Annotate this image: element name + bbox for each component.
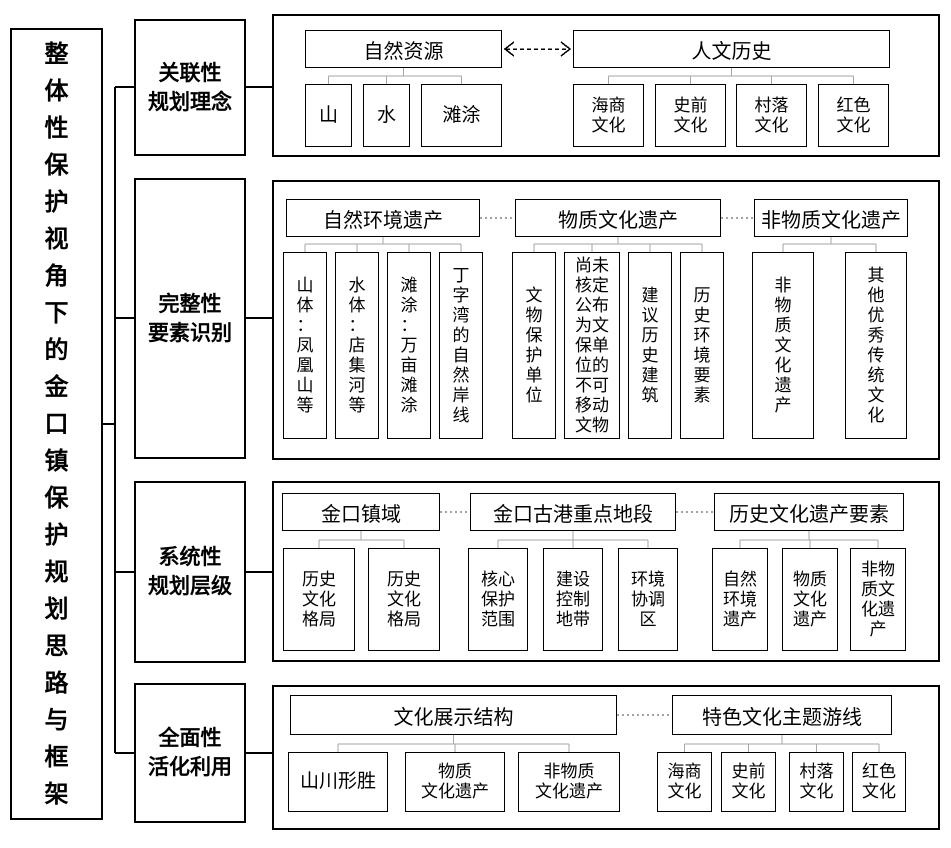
child-text: 山川形胜 xyxy=(300,772,376,792)
tree-child-box: 历史环境要素 xyxy=(680,252,724,439)
tree-child-box: 环境协调区 xyxy=(618,548,678,651)
parent-box-jinkou-town-area: 金口镇域 xyxy=(282,493,440,531)
parent-box-humanistic-history: 人文历史 xyxy=(573,30,890,68)
tree-child-box: 非物质 文化遗产 xyxy=(518,752,620,812)
parent-text: 物质文化遗产 xyxy=(558,204,678,233)
section-label-integrity: 完整性 要素识别 xyxy=(134,178,246,459)
child-text: 自然环境遗产 xyxy=(719,570,762,630)
section-label-text: 全面性 活化利用 xyxy=(148,724,232,782)
child-text: 环境协调区 xyxy=(627,570,670,630)
tree-child-box: 建设控制地带 xyxy=(543,548,603,651)
parent-box-culture-display-structure: 文化展示结构 xyxy=(290,695,617,735)
child-text: 山体：凤凰山等 xyxy=(294,276,316,416)
child-text: 物质 文化遗产 xyxy=(421,762,489,802)
parent-box-jinkou-ancient-port-area: 金口古港重点地段 xyxy=(470,493,676,531)
parent-text: 历史文化遗产要素 xyxy=(729,498,889,527)
parent-box-natural-resources: 自然资源 xyxy=(305,30,502,68)
child-text: 水体：店集河等 xyxy=(346,276,368,416)
child-text: 建设控制地带 xyxy=(552,570,595,630)
child-text: 物质文化遗产 xyxy=(789,570,832,630)
parent-box-themed-culture-routes: 特色文化主题游线 xyxy=(672,695,892,735)
child-text: 史前文化 xyxy=(727,762,770,802)
child-text: 核心保护范围 xyxy=(477,570,520,630)
child-text: 山 xyxy=(319,106,338,126)
section-label-text: 关联性 规划理念 xyxy=(148,59,232,117)
parent-text: 文化展示结构 xyxy=(394,701,514,730)
child-text: 建议历史建筑 xyxy=(639,286,661,406)
tree-child-box: 海商文化 xyxy=(657,752,712,812)
tree-child-box: 红色文化 xyxy=(818,84,889,147)
child-text: 其他优秀传统文化 xyxy=(865,266,887,426)
parent-box-material-cultural-heritage: 物质文化遗产 xyxy=(515,199,721,237)
tree-child-box: 山 xyxy=(305,84,352,147)
parent-text: 自然环境遗产 xyxy=(323,204,443,233)
tree-child-box: 丁字湾的自然岸线 xyxy=(439,252,483,439)
child-text: 村落文化 xyxy=(750,96,793,136)
child-text: 历史文化格局 xyxy=(383,570,426,630)
section-label-relevance: 关联性 规划理念 xyxy=(134,19,246,156)
child-text: 红色文化 xyxy=(832,96,875,136)
child-text: 村落文化 xyxy=(795,762,838,802)
tree-child-box: 历史文化格局 xyxy=(283,548,355,651)
tree-child-box: 滩涂 xyxy=(421,84,502,147)
parent-text: 特色文化主题游线 xyxy=(702,701,862,730)
tree-child-box: 村落文化 xyxy=(736,84,807,147)
child-text: 丁字湾的自然岸线 xyxy=(450,266,472,426)
tree-child-box: 山川形胜 xyxy=(288,752,388,812)
section-label-text: 完整性 要素识别 xyxy=(148,290,232,348)
tree-child-box: 文物保护单位 xyxy=(512,252,556,439)
tree-child-box: 历史文化格局 xyxy=(368,548,440,651)
child-text: 滩涂 xyxy=(442,106,480,126)
child-text: 历史文化格局 xyxy=(298,570,341,630)
tree-child-box: 核心保护范围 xyxy=(468,548,528,651)
section-label-text: 系统性 规划层级 xyxy=(148,543,232,601)
parent-text: 金口古港重点地段 xyxy=(493,498,653,527)
child-text: 非物质文化遗产 xyxy=(857,560,900,640)
child-text: 海商文化 xyxy=(587,96,630,136)
parent-text: 人文历史 xyxy=(692,35,772,64)
section-label-comprehensive: 全面性 活化利用 xyxy=(134,683,246,823)
child-text: 滩涂：万亩滩涂 xyxy=(398,276,420,416)
main-title-text: 整体性保护视角下的金口镇保护规划思路与框架 xyxy=(40,36,72,813)
tree-child-box: 红色文化 xyxy=(852,752,906,812)
tree-child-box: 水 xyxy=(363,84,410,147)
parent-box-intangible-cultural-heritage: 非物质文化遗产 xyxy=(754,199,908,237)
tree-child-box: 尚未核定公布为文保单位的不可移动文物 xyxy=(564,252,620,439)
tree-child-box: 水体：店集河等 xyxy=(335,252,379,439)
tree-child-box: 山体：凤凰山等 xyxy=(283,252,327,439)
parent-text: 金口镇域 xyxy=(321,498,401,527)
tree-child-box: 物质文化遗产 xyxy=(782,548,838,651)
child-text: 海商文化 xyxy=(663,762,706,802)
child-text: 非物质 文化遗产 xyxy=(535,762,603,802)
child-text: 水 xyxy=(377,106,396,126)
parent-text: 自然资源 xyxy=(364,35,444,64)
child-text: 史前文化 xyxy=(669,96,712,136)
main-title-box: 整体性保护视角下的金口镇保护规划思路与框架 xyxy=(10,28,103,820)
parent-text: 非物质文化遗产 xyxy=(761,204,901,233)
tree-child-box: 物质 文化遗产 xyxy=(405,752,505,812)
child-text: 红色文化 xyxy=(858,762,901,802)
child-text: 非物质文化遗产 xyxy=(772,276,794,416)
tree-child-box: 自然环境遗产 xyxy=(712,548,768,651)
parent-box-natural-environment-heritage: 自然环境遗产 xyxy=(286,199,480,237)
diagram-page: { "title": "整体性保护视角下的金口镇保护规划思路与框架", "sec… xyxy=(0,0,951,848)
child-text: 历史环境要素 xyxy=(691,286,713,406)
section-label-systematic: 系统性 规划层级 xyxy=(134,481,246,663)
tree-child-box: 非物质文化遗产 xyxy=(850,548,906,651)
tree-child-box: 其他优秀传统文化 xyxy=(845,252,907,439)
tree-child-box: 滩涂：万亩滩涂 xyxy=(387,252,431,439)
tree-child-box: 建议历史建筑 xyxy=(628,252,672,439)
child-text: 尚未核定公布为文保单位的不可移动文物 xyxy=(571,256,614,436)
tree-child-box: 非物质文化遗产 xyxy=(752,252,814,439)
parent-box-heritage-elements: 历史文化遗产要素 xyxy=(714,493,904,531)
child-text: 文物保护单位 xyxy=(523,286,545,406)
tree-child-box: 海商文化 xyxy=(573,84,644,147)
tree-child-box: 史前文化 xyxy=(655,84,726,147)
tree-child-box: 村落文化 xyxy=(789,752,844,812)
tree-child-box: 史前文化 xyxy=(721,752,776,812)
